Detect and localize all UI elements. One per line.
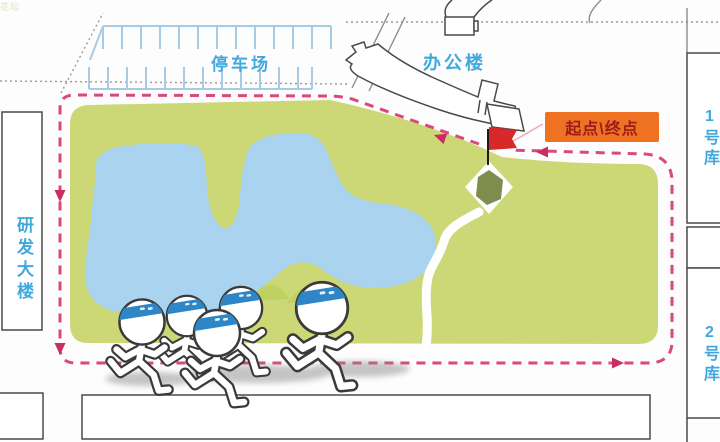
map-canvas bbox=[0, 0, 720, 442]
route-arrow bbox=[55, 343, 66, 355]
parking-lot bbox=[89, 26, 331, 89]
route-arrow bbox=[55, 190, 66, 202]
route-arrow bbox=[536, 147, 548, 158]
warehouse-1-label: 1号库 bbox=[697, 108, 720, 169]
small-north-building bbox=[445, 0, 492, 35]
warehouse-2-label: 2号库 bbox=[697, 324, 720, 385]
rd-building-label: 研发大楼 bbox=[11, 216, 36, 304]
route-arrow bbox=[612, 358, 624, 369]
start-finish-badge: 起点\终点 bbox=[545, 112, 659, 142]
office-building-label: 办公楼 bbox=[423, 49, 486, 75]
campus-run-route-map: 停车场 办公楼 研发大楼 1号库 2号库 花坛 起点\终点 bbox=[0, 0, 720, 442]
parking-lot-label: 停车场 bbox=[211, 50, 271, 75]
south-buildings bbox=[0, 393, 650, 439]
